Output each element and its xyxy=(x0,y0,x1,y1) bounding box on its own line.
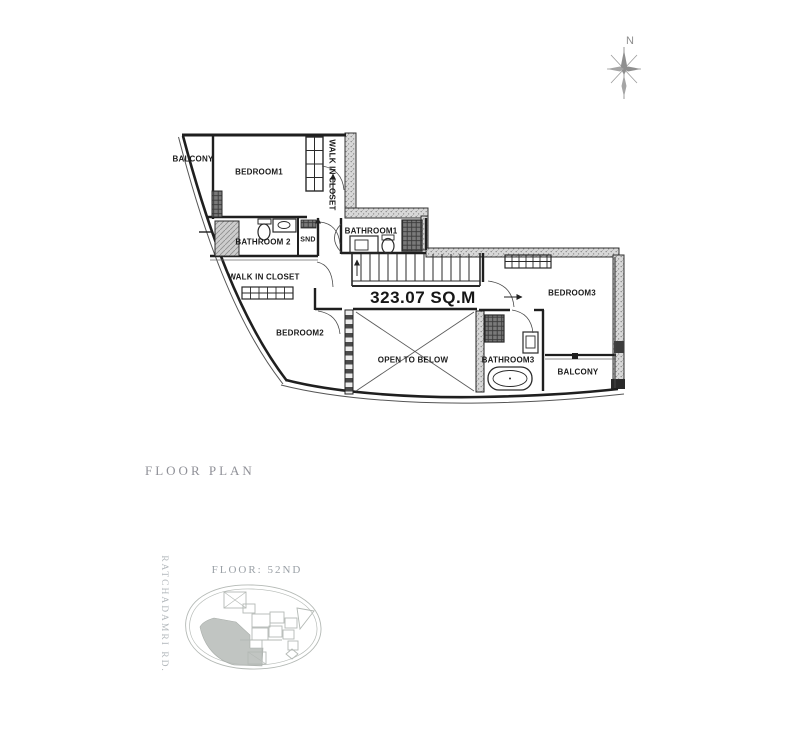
room-label-bathroom1: BATHROOM1 xyxy=(345,227,398,236)
area-label: 323.07 SQ.M xyxy=(370,288,476,308)
room-label-bedroom3: BEDROOM3 xyxy=(548,289,596,298)
room-label-bathroom2: BATHROOM 2 xyxy=(235,238,290,247)
site-map-road-label: RATCHADAMRI RD. xyxy=(159,555,169,673)
room-label-open-to-below: OPEN TO BELOW xyxy=(378,356,448,365)
hatched-walls xyxy=(345,133,625,389)
room-label-snd: SND xyxy=(300,237,315,244)
north-label: N xyxy=(626,35,634,47)
room-label-bedroom1: BEDROOM1 xyxy=(235,168,283,177)
room-label-walk-in-closet-2: WALK IN CLOSET xyxy=(228,273,299,282)
room-label-bedroom2: BEDROOM2 xyxy=(276,329,324,338)
floor-plan-drawing xyxy=(0,0,798,750)
floor-plan-caption: FLOOR PLAN xyxy=(145,463,255,479)
open-to-below-cross xyxy=(356,312,474,391)
north-compass-icon xyxy=(607,47,641,99)
room-label-balcony-top: BALCONY xyxy=(173,155,214,164)
room-label-walk-in-closet-1: WALK IN CLOSET xyxy=(328,139,337,210)
site-key-plan xyxy=(186,585,321,669)
room-label-balcony-bottom: BALCONY xyxy=(558,368,599,377)
floor-plan-page: BALCONY BEDROOM1 WALK IN CLOSET BATHROOM… xyxy=(0,0,798,750)
staircase xyxy=(352,253,480,286)
site-map-floor-label: FLOOR: 52ND xyxy=(212,564,303,576)
room-label-bathroom3: BATHROOM3 xyxy=(482,356,535,365)
